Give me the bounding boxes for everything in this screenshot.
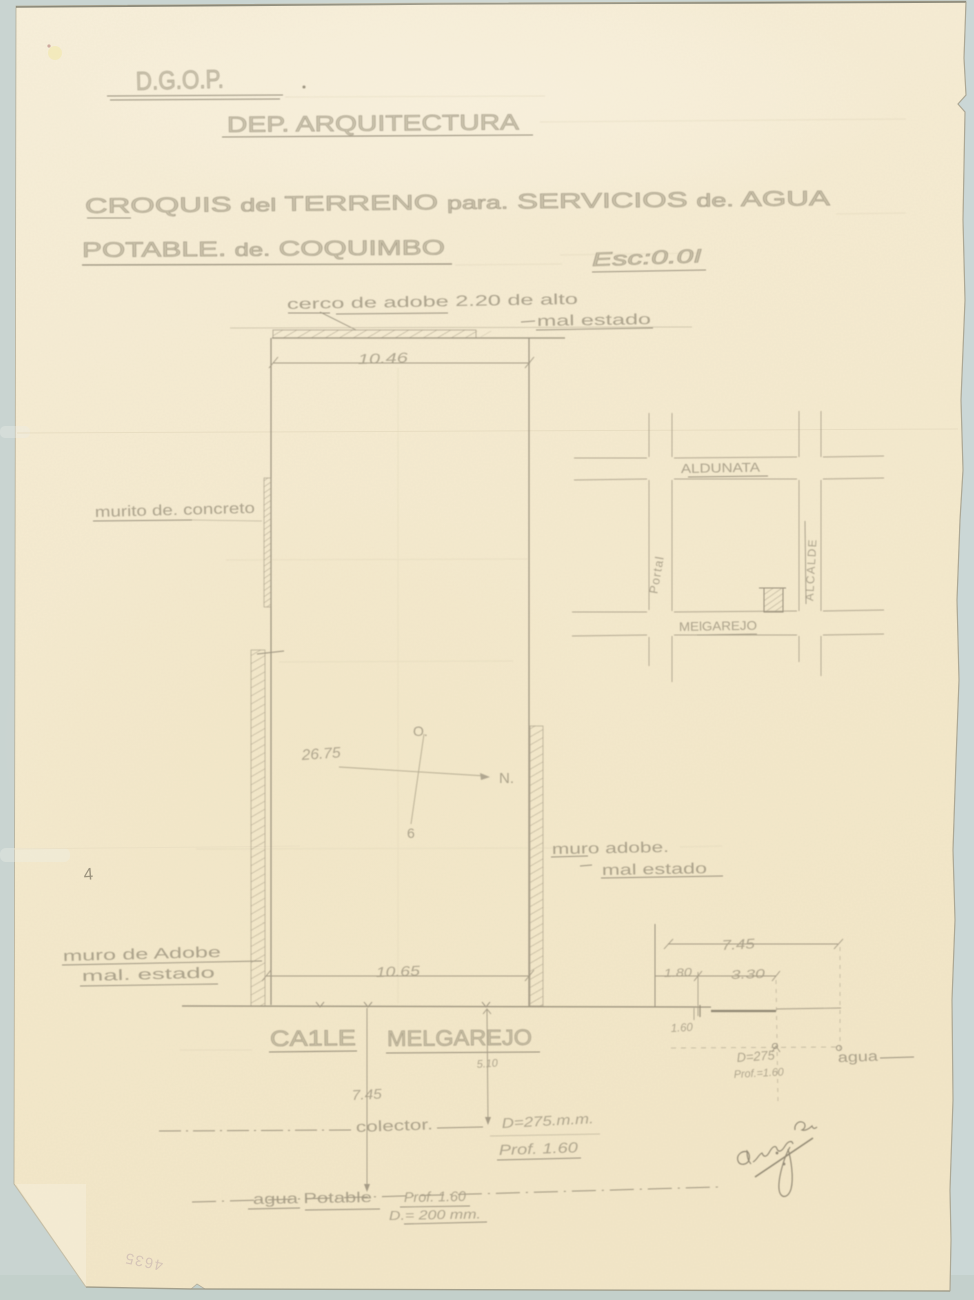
svg-text:4: 4 [83,864,94,884]
svg-text:DEP. ARQUITECTURA: DEP. ARQUITECTURA [227,109,520,137]
svg-text:O.: O. [413,723,428,739]
svg-text:Prof. 1.60: Prof. 1.60 [404,1188,466,1205]
svg-text:Prof. 1.60: Prof. 1.60 [499,1140,579,1159]
svg-text:D=275: D=275 [736,1047,776,1065]
svg-text:D.G.O.P.: D.G.O.P. [135,64,224,96]
svg-text:muro adobe.: muro adobe. [552,839,669,858]
svg-text:10.46: 10.46 [358,349,409,367]
svg-text:MELGAREJO: MELGAREJO [387,1025,532,1051]
svg-text:7.45: 7.45 [721,935,755,953]
svg-text:7.45: 7.45 [351,1085,382,1103]
svg-text:mal. estado: mal. estado [82,965,215,985]
svg-text:CA1LE: CA1LE [270,1025,356,1051]
svg-text:agua Potable: agua Potable [253,1190,372,1208]
svg-text:3.30: 3.30 [731,967,766,982]
svg-text:agua: agua [838,1048,879,1065]
svg-text:colector.: colector. [356,1116,434,1136]
svg-text:N.: N. [499,770,514,787]
svg-text:26.75: 26.75 [300,744,342,764]
svg-text:POTABLE. de. COQUIMBO: POTABLE. de. COQUIMBO [82,236,445,262]
svg-text:ALDUNATA: ALDUNATA [681,460,761,476]
svg-text:6: 6 [407,825,415,841]
svg-text:MElGAREJO: MElGAREJO [679,619,758,634]
svg-text:Esc:0.0I: Esc:0.0I [592,246,704,271]
svg-text:1.60: 1.60 [671,1022,694,1035]
svg-text:1.80: 1.80 [664,967,693,980]
svg-text:5.10: 5.10 [476,1057,499,1070]
svg-text:10.65: 10.65 [376,962,421,980]
svg-text:D.= 200 mm.: D.= 200 mm. [389,1206,481,1223]
